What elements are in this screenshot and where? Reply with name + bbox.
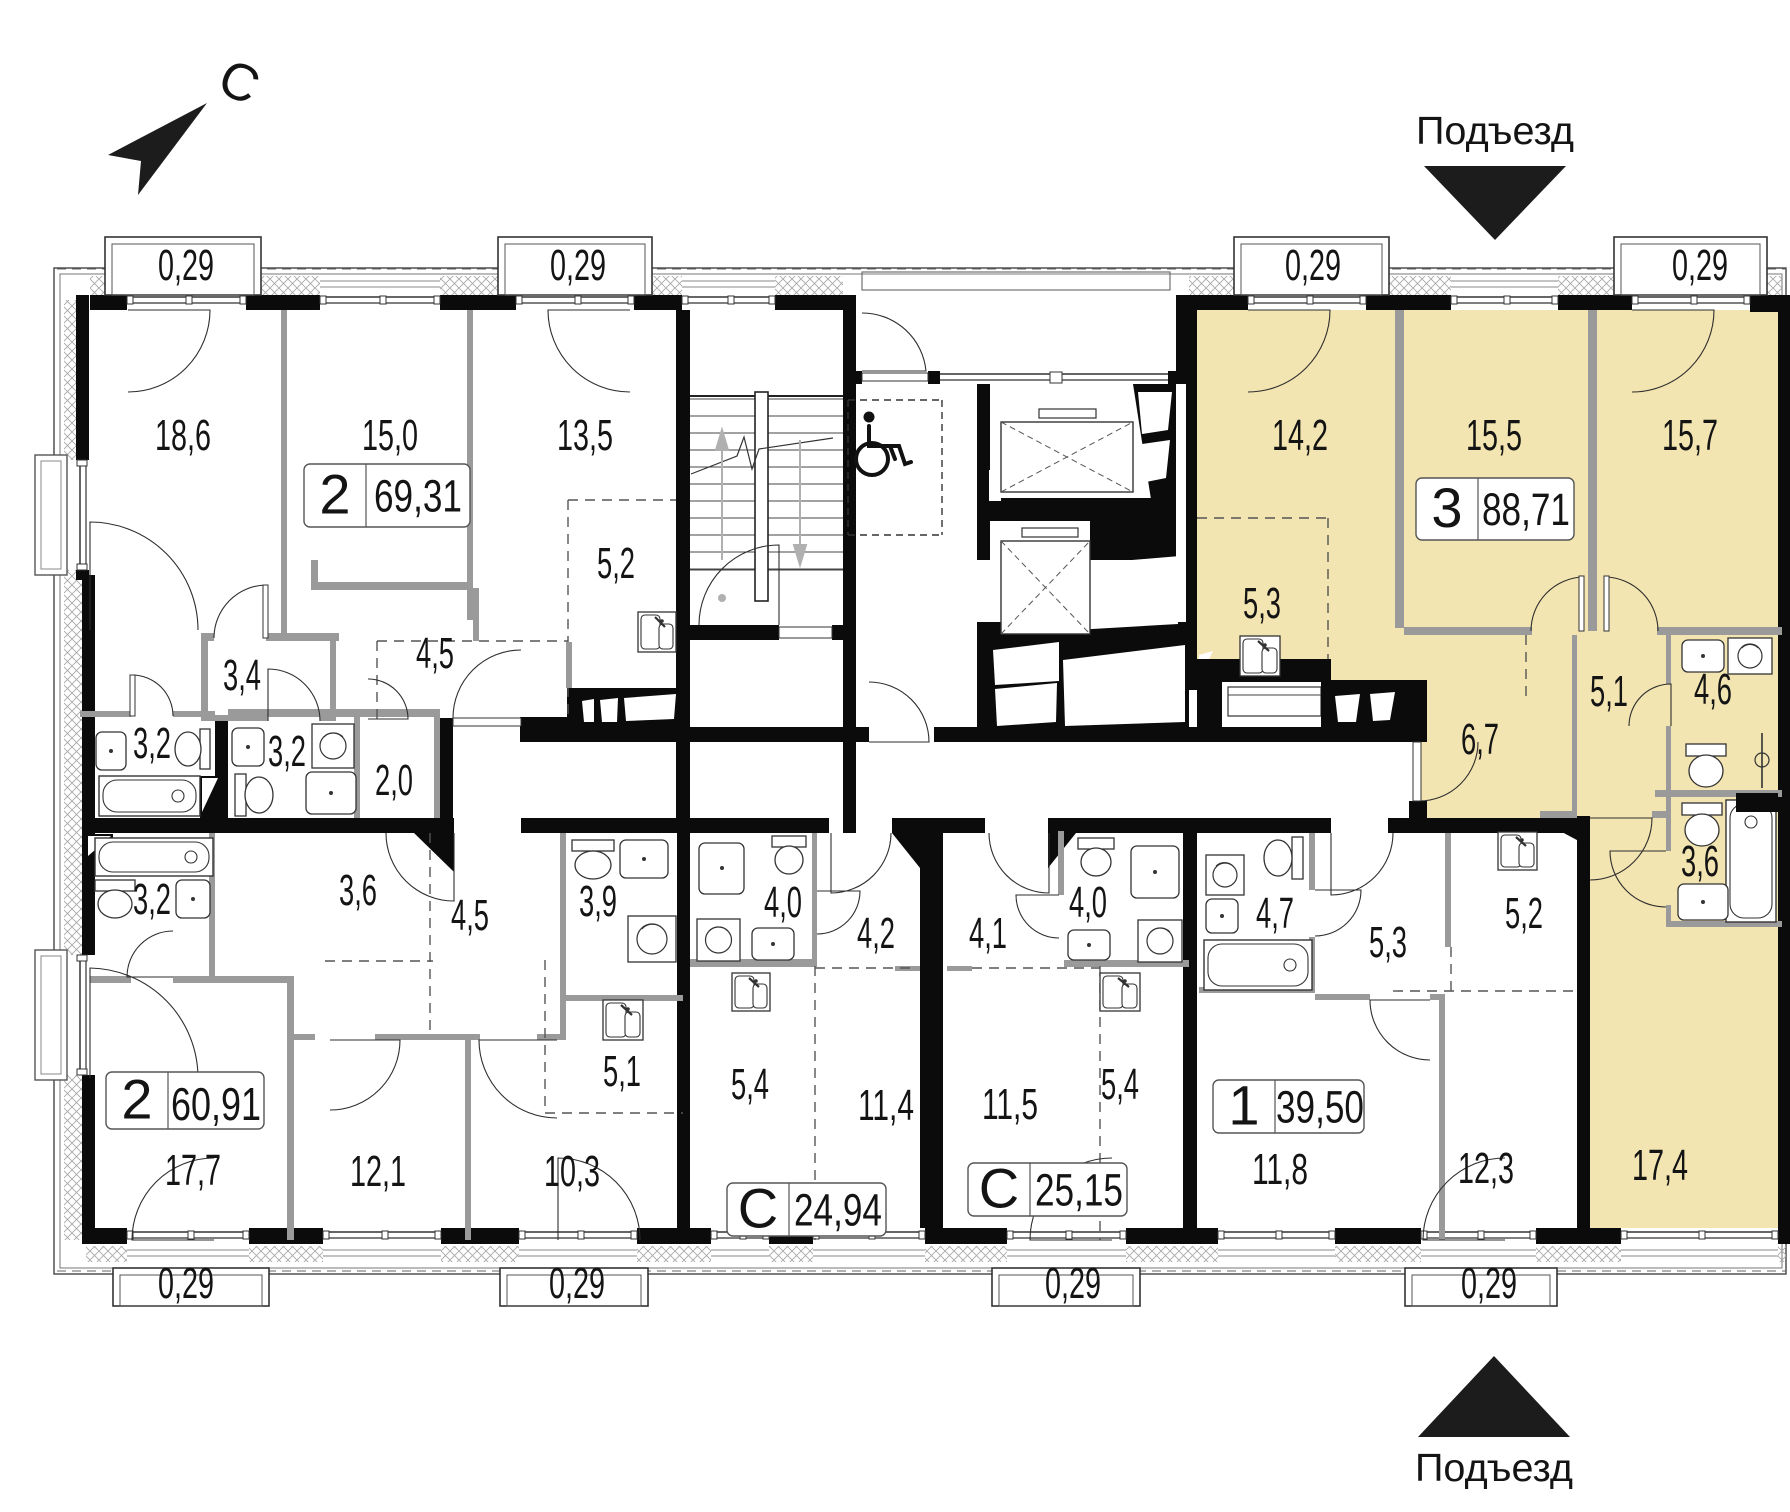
svg-text:4,5: 4,5 bbox=[416, 629, 454, 678]
svg-text:2,0: 2,0 bbox=[375, 756, 413, 805]
svg-text:12,3: 12,3 bbox=[1458, 1144, 1514, 1193]
svg-text:С: С bbox=[738, 1177, 778, 1240]
svg-text:0,29: 0,29 bbox=[1461, 1259, 1517, 1308]
svg-text:0,29: 0,29 bbox=[1045, 1259, 1101, 1308]
svg-text:4,7: 4,7 bbox=[1256, 889, 1294, 938]
svg-text:12,1: 12,1 bbox=[350, 1147, 406, 1196]
svg-text:3,6: 3,6 bbox=[339, 866, 377, 915]
svg-text:2: 2 bbox=[319, 463, 350, 526]
svg-text:5,1: 5,1 bbox=[603, 1047, 641, 1096]
svg-text:2: 2 bbox=[121, 1068, 152, 1131]
svg-text:3,2: 3,2 bbox=[268, 727, 306, 776]
svg-text:4,5: 4,5 bbox=[451, 891, 489, 940]
svg-text:0,29: 0,29 bbox=[1285, 241, 1341, 290]
svg-text:15,5: 15,5 bbox=[1466, 411, 1522, 460]
svg-text:3,4: 3,4 bbox=[223, 651, 261, 700]
svg-text:4,0: 4,0 bbox=[1069, 878, 1107, 927]
svg-text:4,0: 4,0 bbox=[764, 878, 802, 927]
svg-text:1: 1 bbox=[1228, 1074, 1259, 1137]
svg-text:Подъезд: Подъезд bbox=[1416, 110, 1574, 153]
svg-text:3,6: 3,6 bbox=[1681, 837, 1719, 886]
svg-text:5,3: 5,3 bbox=[1243, 579, 1281, 628]
svg-text:4,2: 4,2 bbox=[857, 909, 895, 958]
svg-text:15,0: 15,0 bbox=[362, 411, 418, 460]
svg-text:5,2: 5,2 bbox=[1505, 889, 1543, 938]
svg-text:14,2: 14,2 bbox=[1272, 411, 1328, 460]
svg-text:18,6: 18,6 bbox=[155, 411, 211, 460]
svg-text:5,3: 5,3 bbox=[1369, 918, 1407, 967]
svg-text:15,7: 15,7 bbox=[1662, 411, 1718, 460]
svg-text:6,7: 6,7 bbox=[1461, 715, 1499, 764]
svg-text:0,29: 0,29 bbox=[1672, 241, 1728, 290]
svg-text:13,5: 13,5 bbox=[557, 411, 613, 460]
svg-text:3,9: 3,9 bbox=[579, 877, 617, 926]
svg-text:4,6: 4,6 bbox=[1694, 665, 1732, 714]
svg-text:3,2: 3,2 bbox=[133, 875, 171, 924]
svg-text:5,4: 5,4 bbox=[1101, 1060, 1139, 1109]
svg-text:24,94: 24,94 bbox=[794, 1185, 882, 1236]
svg-text:3,2: 3,2 bbox=[133, 719, 171, 768]
svg-text:11,8: 11,8 bbox=[1252, 1145, 1308, 1194]
svg-text:5,2: 5,2 bbox=[597, 539, 635, 588]
svg-text:Подъезд: Подъезд bbox=[1415, 1447, 1573, 1490]
svg-text:69,31: 69,31 bbox=[374, 471, 462, 522]
svg-text:39,50: 39,50 bbox=[1276, 1082, 1364, 1133]
svg-text:0,29: 0,29 bbox=[158, 1259, 214, 1308]
svg-text:11,4: 11,4 bbox=[858, 1081, 914, 1130]
svg-text:0,29: 0,29 bbox=[550, 241, 606, 290]
svg-text:0,29: 0,29 bbox=[549, 1259, 605, 1308]
svg-text:5,4: 5,4 bbox=[731, 1060, 769, 1109]
svg-text:5,1: 5,1 bbox=[1590, 667, 1628, 716]
svg-text:0,29: 0,29 bbox=[158, 241, 214, 290]
svg-text:4,1: 4,1 bbox=[969, 909, 1007, 958]
svg-text:17,4: 17,4 bbox=[1632, 1141, 1688, 1190]
svg-text:3: 3 bbox=[1431, 476, 1462, 539]
svg-text:С: С bbox=[979, 1157, 1019, 1220]
svg-text:88,71: 88,71 bbox=[1482, 484, 1570, 535]
svg-text:60,91: 60,91 bbox=[171, 1078, 261, 1130]
svg-text:11,5: 11,5 bbox=[982, 1080, 1038, 1129]
svg-text:25,15: 25,15 bbox=[1035, 1165, 1123, 1216]
svg-text:17,7: 17,7 bbox=[165, 1146, 221, 1195]
svg-text:10,3: 10,3 bbox=[544, 1147, 600, 1196]
